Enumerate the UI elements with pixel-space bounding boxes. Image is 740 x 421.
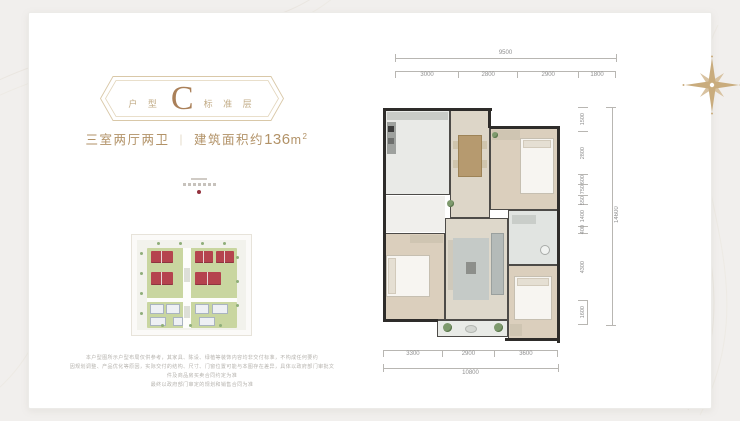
brand-mark-line1 xyxy=(191,178,207,180)
site-building-red xyxy=(151,272,173,285)
title-rooms: 三室两厅两卫 xyxy=(86,133,170,147)
site-building-red xyxy=(195,272,221,285)
dim-bottom-total: 10800 xyxy=(383,370,558,376)
badge-label-right: 标 准 层 xyxy=(204,87,256,110)
balcony-seat xyxy=(465,325,477,333)
indoor-plant-icon xyxy=(447,200,454,207)
room-hallway xyxy=(385,196,445,232)
bathroom-toilet xyxy=(540,245,550,255)
master-pillow xyxy=(517,278,549,286)
living-sofa xyxy=(491,233,504,295)
dim-top-chain: 3000 2800 2900 1800 xyxy=(395,78,616,85)
master-dresser xyxy=(510,324,522,336)
site-building-white xyxy=(150,304,164,314)
indoor-plant-icon xyxy=(492,132,498,138)
unit-title: 三室两厅两卫｜建筑面积约136m2 xyxy=(59,129,335,148)
site-building-white xyxy=(166,304,180,314)
badge-label-left: 户 型 xyxy=(128,87,161,110)
dining-chair xyxy=(453,160,458,168)
balcony-plant-icon xyxy=(494,323,503,332)
title-area-value: 136 xyxy=(264,131,291,148)
floor-plan: 9500 3000 2800 2900 1800 1500 2800 600 7… xyxy=(350,40,650,390)
title-area-unit: m2 xyxy=(291,133,309,147)
disclaimer-line-3: 最终以政府部门审定的规划和销售合同为准 xyxy=(69,381,335,390)
dining-chair xyxy=(482,141,487,149)
disclaimer-line-2: 因规划调整、产品优化等原因，实际交付的结构、尺寸、门窗位置可能与本图存在差异，具… xyxy=(69,363,335,381)
bedroom3-wardrobe xyxy=(410,235,443,243)
dim-right-chain: 1500 2800 600 750 550 1400 400 4300 1600 xyxy=(578,107,588,325)
site-building-white xyxy=(199,317,215,326)
title-divider: ｜ xyxy=(176,135,189,147)
kitchen-counter xyxy=(387,112,448,120)
site-building-white xyxy=(212,304,228,314)
site-plan-field xyxy=(137,240,246,330)
site-plan-thumbnail xyxy=(131,234,252,336)
dim-top-total: 9500 xyxy=(395,50,616,56)
brand-mark-red-dot xyxy=(197,190,201,194)
disclaimer-text: 本户型图所示户型布局仅供参考，其家具、陈设、绿植等装饰内容均非交付标准，不构成任… xyxy=(69,354,335,390)
bedroom3-pillow xyxy=(388,258,396,294)
brand-mark-line2 xyxy=(169,183,229,186)
dining-table xyxy=(458,135,482,177)
site-building-white xyxy=(173,317,183,326)
living-coffee-table xyxy=(466,262,476,274)
site-building-red xyxy=(195,251,213,263)
brand-mark xyxy=(169,178,229,194)
balcony-plant-icon xyxy=(443,323,452,332)
site-building-white xyxy=(195,304,209,314)
site-building-red xyxy=(216,251,234,263)
dim-right-total: 14600 xyxy=(614,195,620,235)
disclaimer-line-1: 本户型图所示户型布局仅供参考，其家具、陈设、绿植等装饰内容均非交付标准，不构成任… xyxy=(69,354,335,363)
unit-type-badge: 户 型 C 标 准 层 xyxy=(99,75,285,122)
bedroom2-pillow xyxy=(523,140,551,148)
site-building-red xyxy=(151,251,173,263)
dining-chair xyxy=(453,141,458,149)
dining-chair xyxy=(482,160,487,168)
compass-rose-icon xyxy=(682,55,740,115)
kitchen-sink xyxy=(388,138,394,144)
title-area-prefix: 建筑面积约 xyxy=(194,133,264,147)
dim-bottom-chain: 3300 2900 3600 xyxy=(383,357,558,364)
badge-letter: C xyxy=(171,82,194,116)
kitchen-stove xyxy=(388,126,394,132)
bathroom-vanity xyxy=(512,215,536,224)
